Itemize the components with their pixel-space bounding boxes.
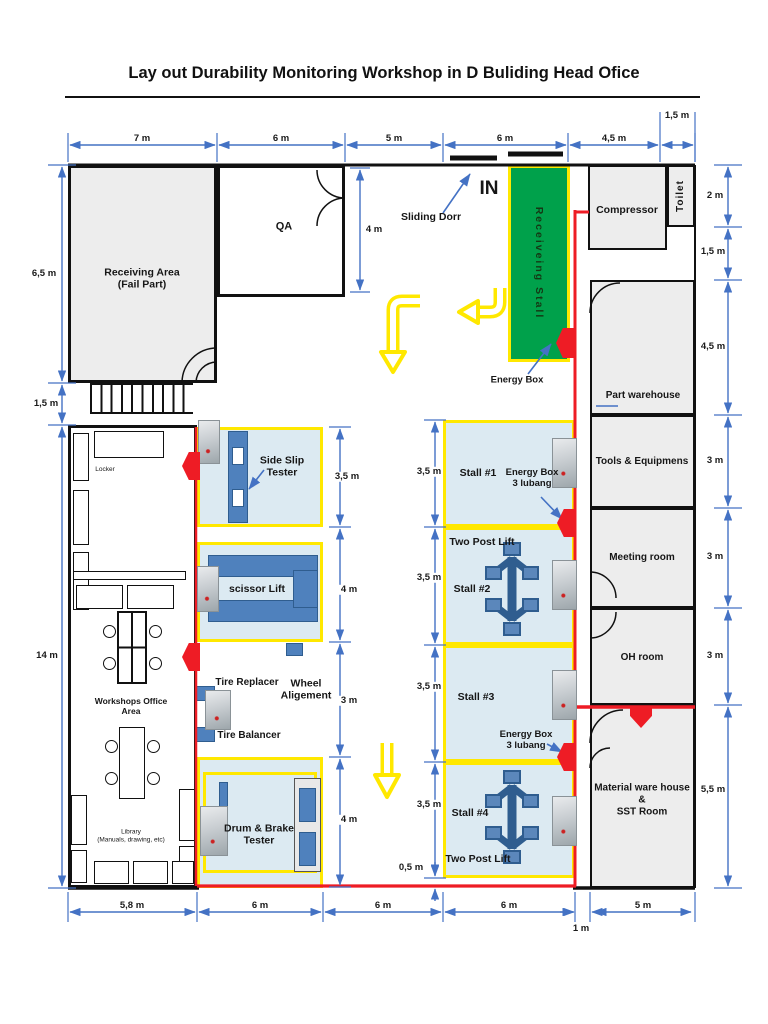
flow-arrow-turn-down [381,301,420,372]
dimension-label: 3 m [705,456,725,466]
stairs-strip [90,383,193,414]
drum-brake-roller [299,832,316,866]
stall-3-label: Stall #3 [458,691,495,703]
wheel-alignment-label: Wheel Aligement [281,678,332,703]
side-slip-plate [232,447,244,465]
drum-brake-roller [299,788,316,822]
library-label: Library (Manuals, drawing, etc) [97,828,165,843]
dimension-label: 3,5 m [415,573,443,583]
chair [147,740,160,753]
qa-label: QA [276,221,293,234]
side-slip-label: Side Slip Tester [260,455,304,480]
chair [105,740,118,753]
workshops-office-label: Workshops Office Area [95,696,168,716]
page-title: Lay out Durability Monitoring Workshop i… [0,64,768,83]
dimension-label: 6,5 m [30,269,58,279]
dimension-label: 4 m [364,225,384,235]
two-post-lift-label: Two Post Lift [445,853,510,865]
locker-cabinet [73,490,89,545]
chair [149,657,162,670]
chair [105,772,118,785]
office-table [117,611,147,684]
library-shelf [94,861,129,884]
equipment-photo [552,560,577,610]
tire-balancer-label: Tire Balancer [217,730,280,742]
dimension-label: 4,5 m [600,134,628,144]
dimension-label: 1,5 m [663,111,691,121]
stall-4-label: Stall #4 [452,807,489,819]
dimension-label: 6 m [250,901,270,911]
toilet-label: Toilet [675,180,687,212]
equipment-photo [205,690,231,730]
dimension-label: 1 m [571,924,591,934]
meeting-room-label: Meeting room [609,552,675,564]
equipment-photo [198,420,220,464]
energy-box-3-label: Energy Box 3 lubang [500,729,553,751]
library-shelf [71,850,87,883]
dimension-label: 6 m [499,901,519,911]
oh-room-label: OH room [621,652,664,664]
dimension-label: 3,5 m [415,682,443,692]
chair [149,625,162,638]
sliding-door-bars [450,154,563,158]
material-sst-label: Material ware house & SST Room [594,782,690,817]
equipment-photo [197,566,219,612]
dimension-label: 3 m [705,651,725,661]
receiving-area-label: Receiving Area (Fail Part) [104,267,179,292]
dimension-label: 0,5 m [397,863,425,873]
dimension-label: 5 m [633,901,653,911]
dimension-label: 3,5 m [415,800,443,810]
dimension-label: 4,5 m [699,342,727,352]
dimension-label: 6 m [373,901,393,911]
energy-box-3-label: Energy Box 3 lubang [506,467,559,489]
title-underline [65,96,700,98]
dimension-label: 5 m [384,134,404,144]
dimension-label: 6 m [495,134,515,144]
drum-brake-label: Drum & Brake Tester [224,823,294,848]
tire-replacer-label: Tire Replacer [215,677,278,689]
library-shelf [71,795,87,845]
dimension-label: 6 m [271,134,291,144]
entrance-label: IN [480,178,499,200]
locker-cabinet [73,433,89,481]
locker-label: Locker [95,466,115,474]
dimension-label: 5,5 m [699,785,727,795]
equipment-photo [552,670,577,720]
dimension-label: 5,8 m [118,901,146,911]
dimension-label: 7 m [132,134,152,144]
office-cabinet [76,585,123,609]
dimension-label: 3 m [705,552,725,562]
equipment-photo [552,796,577,846]
stall-1-label: Stall #1 [460,467,497,479]
part-warehouse-label: Part warehouse [606,390,680,402]
scissor-lift-link [293,570,318,608]
dimension-label: 2 m [705,191,725,201]
office-table [119,727,145,799]
dimension-label: 3 m [339,696,359,706]
chair [147,772,160,785]
sliding-door-label: Sliding Dorr [401,211,461,223]
chair [103,625,116,638]
wheel-alignment-sensor [286,643,303,656]
dimension-label: 3,5 m [333,472,361,482]
dimension-label: 1,5 m [32,399,60,409]
flow-arrow-turn-left [459,288,500,323]
compressor-label: Compressor [596,204,658,216]
side-slip-tester-unit [228,431,248,523]
locker-cabinet [94,431,164,458]
two-post-lift-label: Two Post Lift [449,536,514,548]
chair [103,657,116,670]
energy-box-label: Energy Box [491,374,544,385]
stall-2-label: Stall #2 [454,583,491,595]
library-shelf [172,861,194,884]
dimension-label: 1,5 m [699,247,727,257]
library-shelf [179,789,195,841]
office-cabinet [127,585,174,609]
floor-plan-page: Lay out Durability Monitoring Workshop i… [0,0,768,1024]
dimension-label: 4 m [339,585,359,595]
receiving-stall-label: Receiveing Stall [533,207,545,320]
dimension-label: 3,5 m [415,467,443,477]
tools-equipment-label: Tools & Equipmens [596,456,689,468]
office-counter [73,571,186,580]
library-shelf [133,861,168,884]
dimension-label: 4 m [339,815,359,825]
scissor-lift-label: scissor Lift [229,583,285,595]
side-slip-plate [232,489,244,507]
dimension-label: 14 m [34,651,60,661]
flow-arrow-down [375,743,399,797]
